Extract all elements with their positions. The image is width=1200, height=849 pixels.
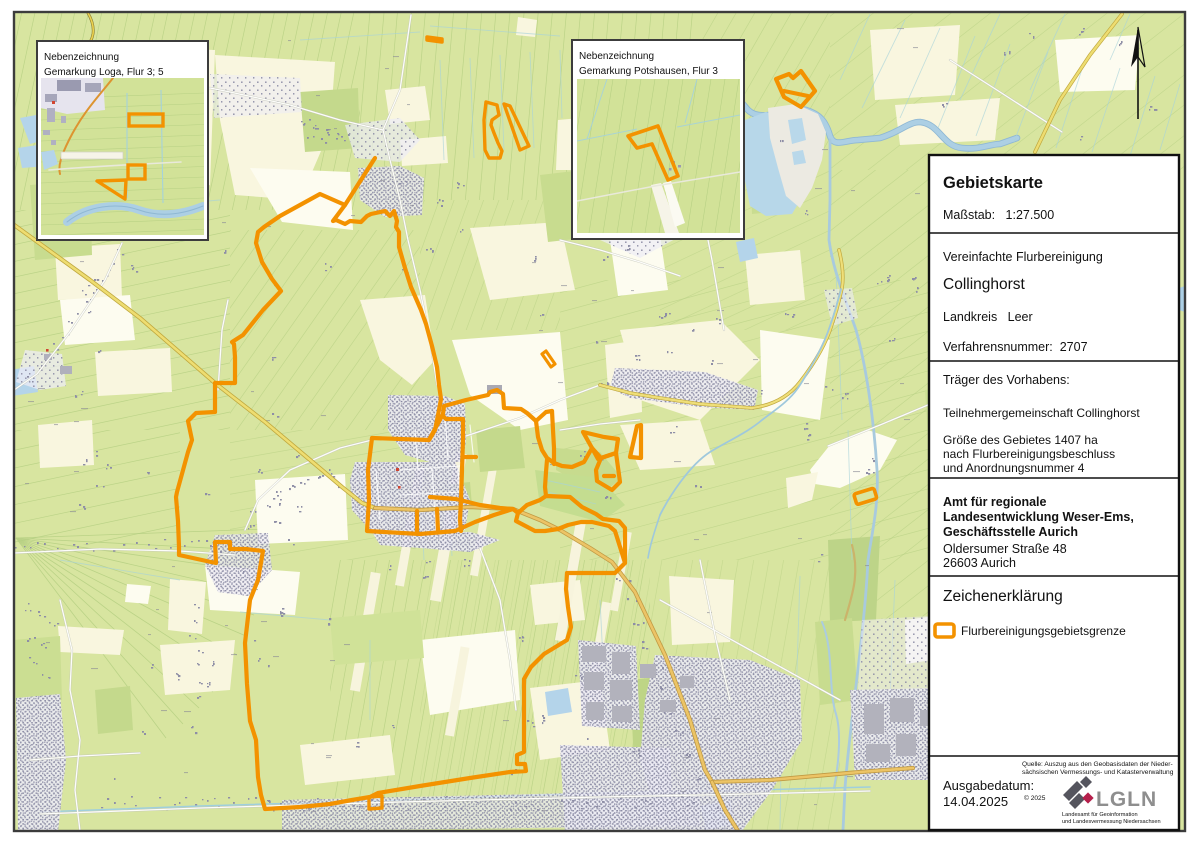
svg-text:Zeichenerklärung: Zeichenerklärung [943,588,1063,605]
svg-text:Verfahrensnummer: 2707: Verfahrensnummer: 2707 [943,340,1088,354]
svg-text:Gemarkung Potshausen, Flur 3: Gemarkung Potshausen, Flur 3 [579,66,718,77]
svg-text:Gebietskarte: Gebietskarte [943,174,1043,192]
svg-text:Landkreis Leer: Landkreis Leer [943,310,1033,324]
svg-text:14.04.2025: 14.04.2025 [943,794,1008,809]
svg-text:und Anordnungsnummer 4: und Anordnungsnummer 4 [943,461,1085,475]
svg-text:sächsischen Vermessungs- und K: sächsischen Vermessungs- und Katasterver… [1022,769,1174,776]
svg-text:Nebenzeichnung: Nebenzeichnung [579,51,654,62]
svg-text:Amt für regionale: Amt für regionale [943,495,1047,509]
svg-text:Träger des Vorhabens:: Träger des Vorhabens: [943,373,1070,387]
svg-text:© 2025: © 2025 [1024,794,1046,802]
svg-text:Landesamt für Geoinformation: Landesamt für Geoinformation [1062,812,1138,818]
svg-text:Größe des Gebietes 1407 ha: Größe des Gebietes 1407 ha [943,433,1098,447]
svg-text:Collinghorst: Collinghorst [943,276,1026,293]
svg-text:Vereinfachte Flurbereinigung: Vereinfachte Flurbereinigung [943,250,1103,264]
svg-text:Maßstab: 1:27.500: Maßstab: 1:27.500 [943,208,1054,222]
svg-text:26603 Aurich: 26603 Aurich [943,556,1016,570]
svg-text:LGLN: LGLN [1096,788,1157,811]
svg-text:Gemarkung Loga, Flur 3; 5: Gemarkung Loga, Flur 3; 5 [44,67,164,78]
svg-text:Landesentwicklung Weser-Ems,: Landesentwicklung Weser-Ems, [943,510,1134,524]
svg-text:nach Flurbereinigungsbeschluss: nach Flurbereinigungsbeschluss [943,447,1115,461]
svg-text:Quelle: Auszug aus den Geobasi: Quelle: Auszug aus den Geobasisdaten der… [1022,761,1173,768]
svg-text:Nebenzeichnung: Nebenzeichnung [44,52,119,63]
svg-text:und Landesvermessung Niedersac: und Landesvermessung Niedersachsen [1062,819,1161,825]
svg-text:Flurbereinigungsgebietsgrenze: Flurbereinigungsgebietsgrenze [961,624,1126,638]
svg-text:Geschäftsstelle Aurich: Geschäftsstelle Aurich [943,525,1078,539]
svg-text:Oldersumer Straße 48: Oldersumer Straße 48 [943,542,1067,556]
svg-text:Teilnehmergemeinschaft Colling: Teilnehmergemeinschaft Collinghorst [943,406,1140,420]
svg-text:Ausgabedatum:: Ausgabedatum: [943,778,1034,793]
